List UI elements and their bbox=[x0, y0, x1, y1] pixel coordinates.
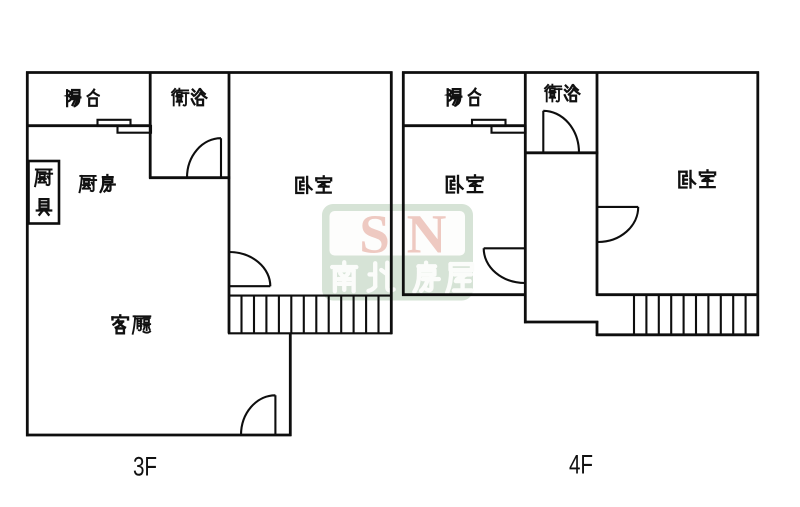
svg-text:3F: 3F bbox=[133, 452, 157, 482]
svg-text:S: S bbox=[359, 204, 390, 265]
svg-text:4F: 4F bbox=[569, 450, 593, 480]
svg-text:N: N bbox=[407, 204, 447, 265]
